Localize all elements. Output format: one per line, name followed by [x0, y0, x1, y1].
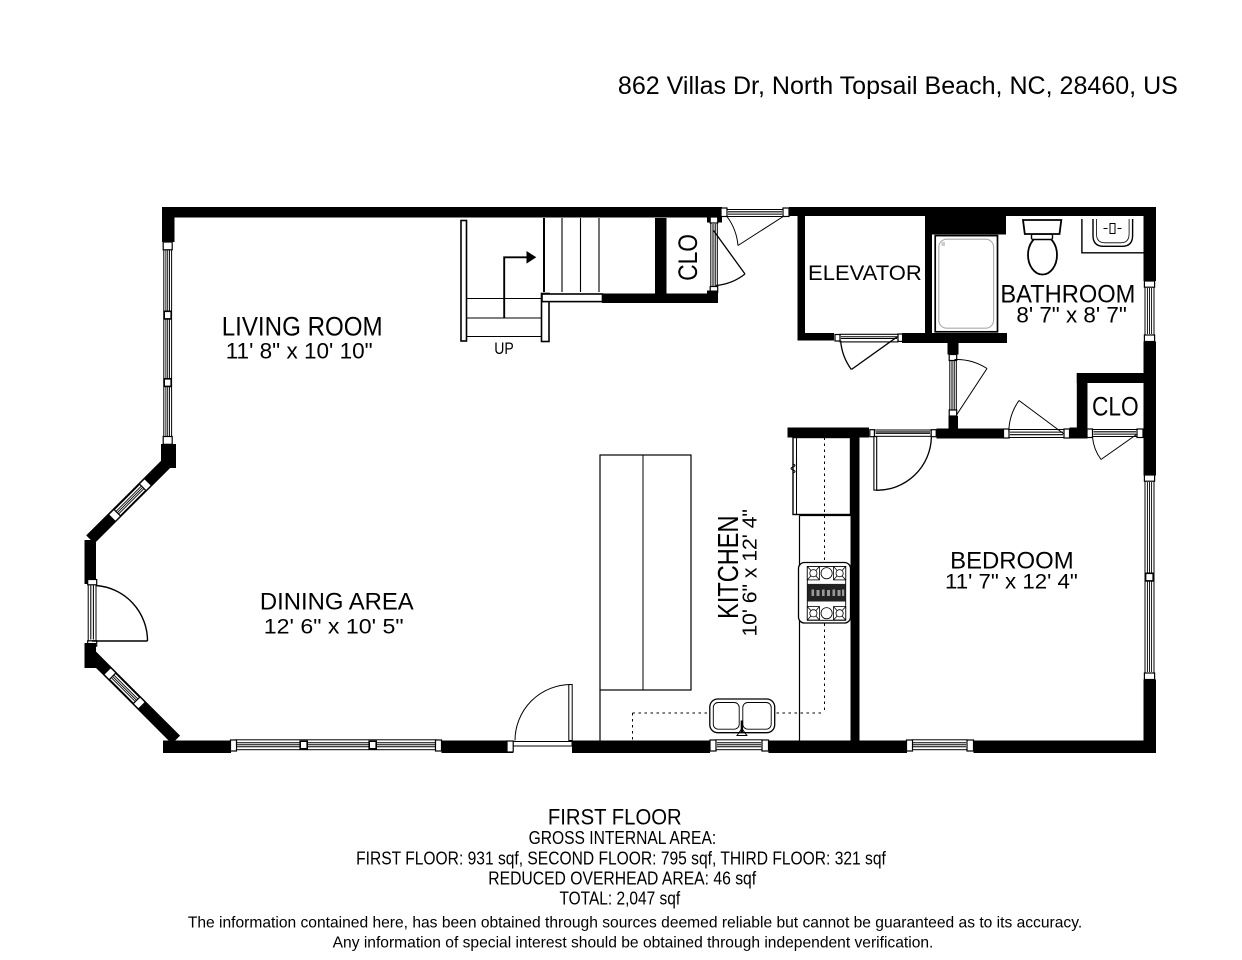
svg-text:FIRST FLOOR: FIRST FLOOR [548, 805, 682, 830]
svg-text:11' 7" x 12' 4": 11' 7" x 12' 4" [945, 571, 1078, 594]
svg-text:10' 6" x 12' 4": 10' 6" x 12' 4" [738, 509, 761, 637]
svg-text:DINING AREA: DINING AREA [260, 589, 415, 616]
svg-text:CLO: CLO [1092, 391, 1139, 421]
svg-text:LIVING ROOM: LIVING ROOM [222, 312, 383, 342]
svg-text:12' 6" x 10' 5": 12' 6" x 10' 5" [264, 614, 404, 638]
svg-text:REDUCED OVERHEAD AREA: 46 sqf: REDUCED OVERHEAD AREA: 46 sqf [488, 867, 757, 888]
svg-text:GROSS INTERNAL AREA:: GROSS INTERNAL AREA: [529, 827, 717, 848]
svg-text:862 Villas Dr, North Topsail B: 862 Villas Dr, North Topsail Beach, NC, … [618, 73, 1178, 100]
svg-text:The information contained here: The information contained here, has been… [188, 915, 1082, 932]
svg-text:UP: UP [494, 339, 514, 358]
svg-text:FIRST FLOOR: 931 sqf, SECOND F: FIRST FLOOR: 931 sqf, SECOND FLOOR: 795 … [356, 847, 886, 868]
svg-text:Any information of special int: Any information of special interest shou… [333, 934, 934, 951]
svg-text:8' 7" x 8' 7": 8' 7" x 8' 7" [1016, 303, 1127, 328]
svg-text:TOTAL: 2,047 sqf: TOTAL: 2,047 sqf [559, 888, 680, 909]
svg-text:ELEVATOR: ELEVATOR [808, 262, 922, 285]
svg-text:11' 8" x 10' 10": 11' 8" x 10' 10" [226, 338, 373, 363]
svg-text:CLO: CLO [673, 234, 703, 281]
